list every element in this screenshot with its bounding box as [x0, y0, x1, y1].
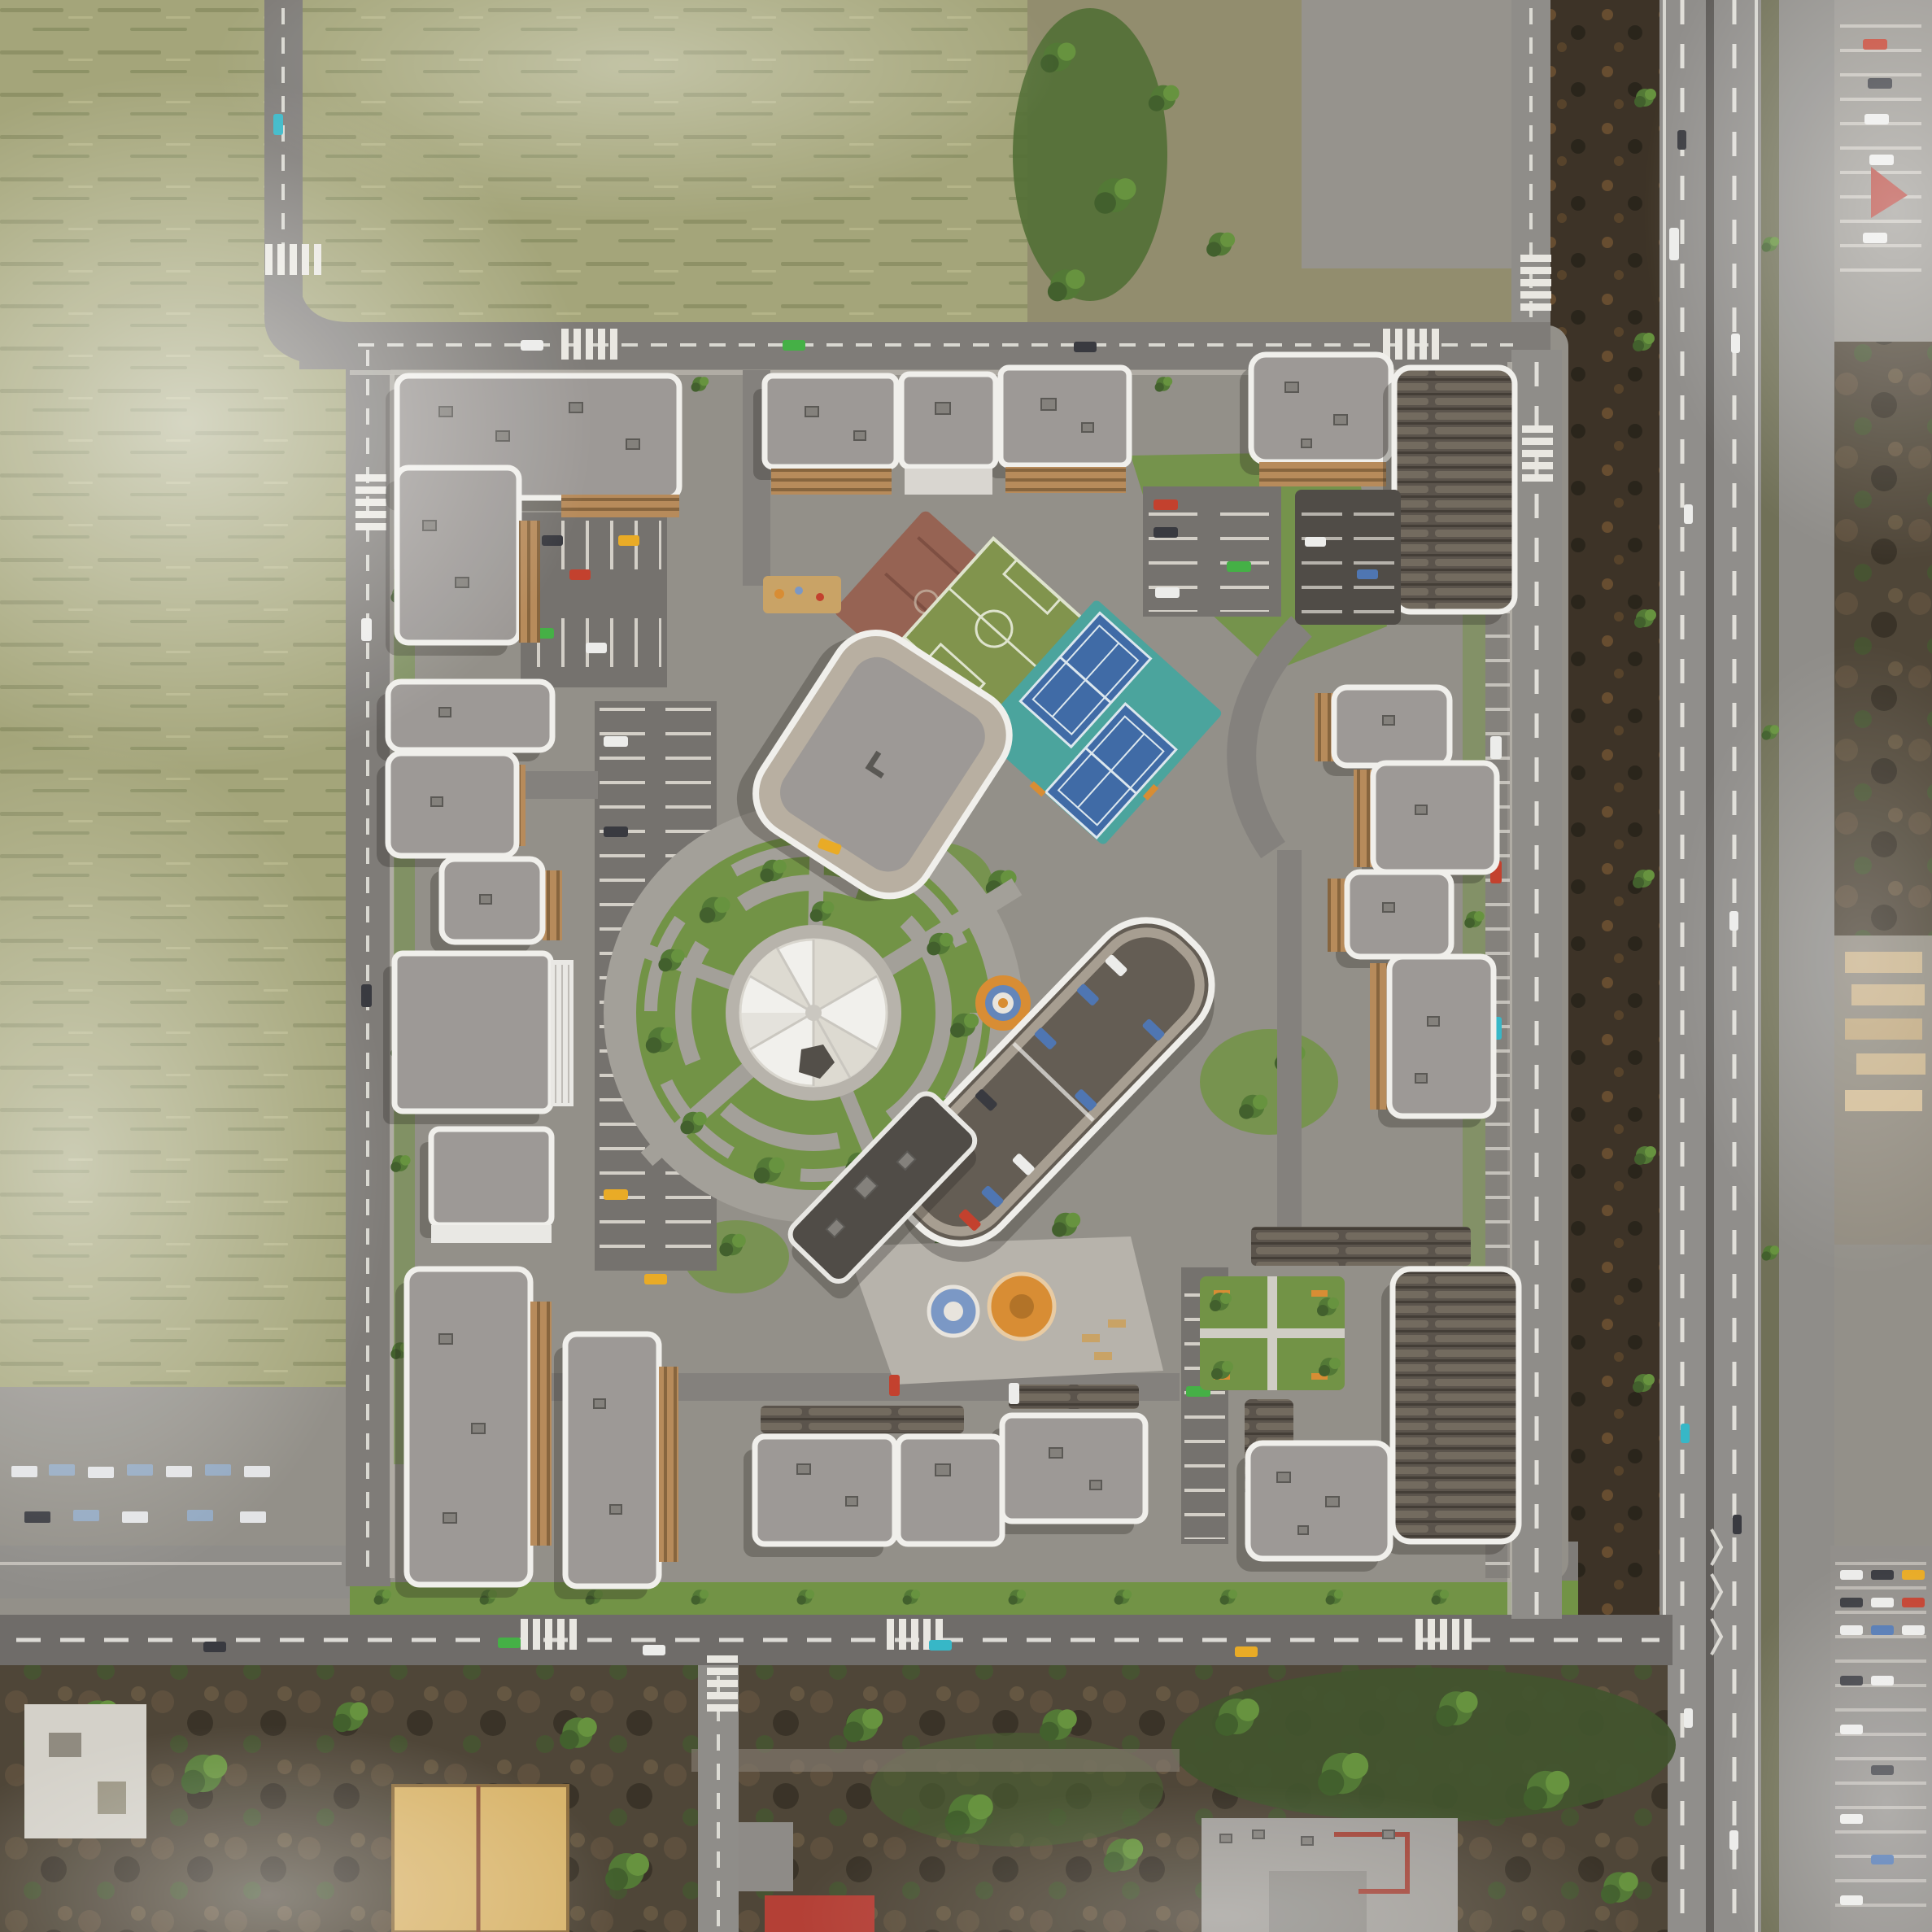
aerial-masterplan-svg: [0, 0, 1932, 1932]
fog-overlays: [0, 0, 1932, 1932]
aerial-screenshot: [0, 0, 1932, 1932]
